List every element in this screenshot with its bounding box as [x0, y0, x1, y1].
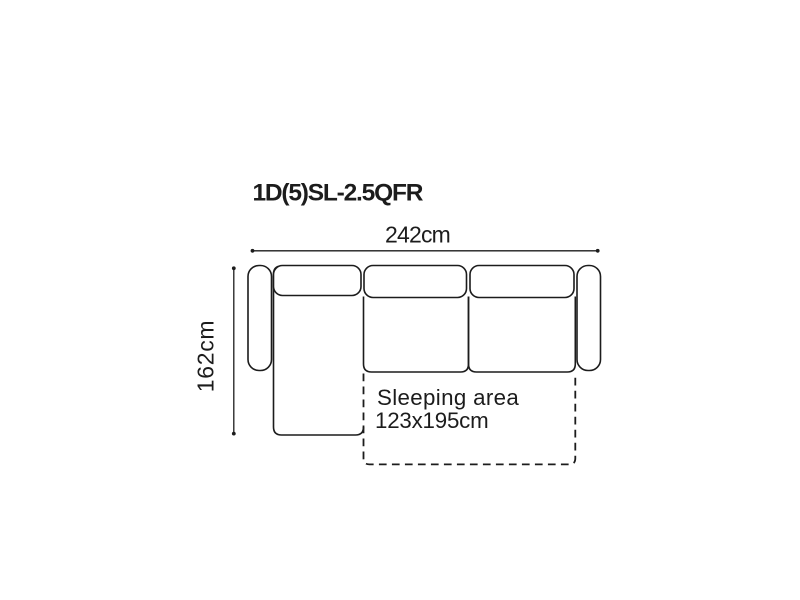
svg-text:162cm: 162cm: [193, 320, 219, 393]
svg-text:123x195cm: 123x195cm: [375, 408, 488, 433]
svg-text:Sleeping area: Sleeping area: [377, 385, 519, 410]
svg-text:1D(5)SL-2.5QFR: 1D(5)SL-2.5QFR: [253, 180, 424, 207]
svg-text:242cm: 242cm: [385, 222, 450, 248]
